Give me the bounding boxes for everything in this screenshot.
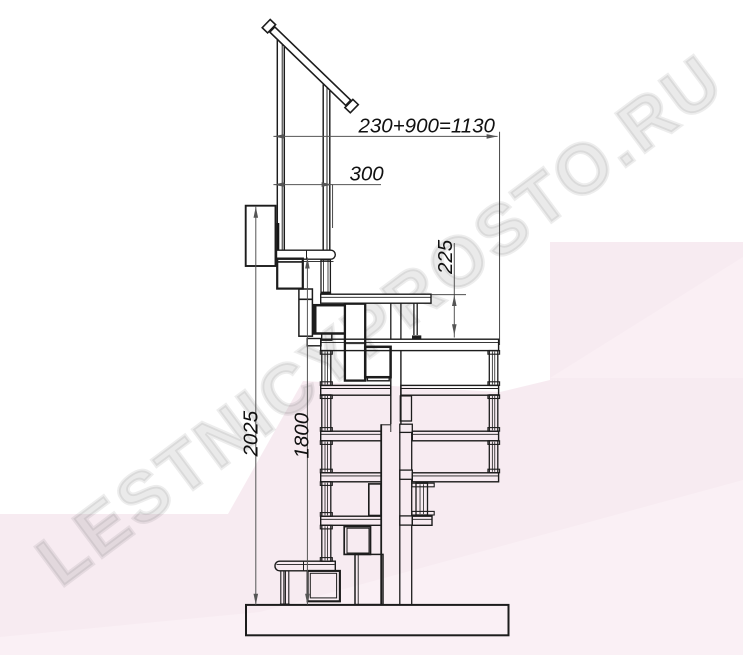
svg-text:225: 225	[434, 239, 457, 275]
svg-text:300: 300	[350, 163, 385, 186]
svg-text:1800: 1800	[291, 412, 314, 458]
svg-text:230+900=1130: 230+900=1130	[358, 114, 496, 137]
svg-text:2025: 2025	[240, 410, 263, 457]
